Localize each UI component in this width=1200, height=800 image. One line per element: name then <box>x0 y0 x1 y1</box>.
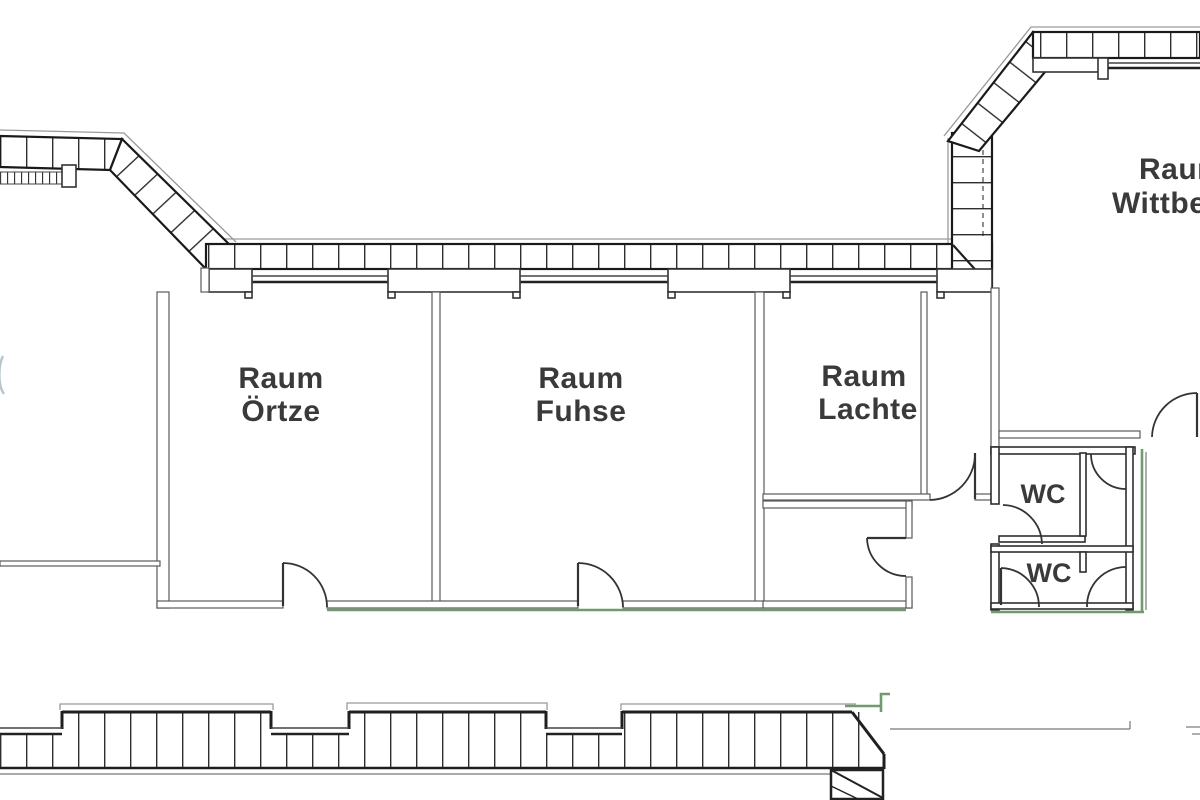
label-oertze-line2: Örtze <box>241 395 320 428</box>
wall-bottom <box>327 601 578 608</box>
wall-pier <box>209 269 252 292</box>
wall-bottom-annex <box>763 601 912 608</box>
wall-annex-right <box>906 577 912 608</box>
clipped-edge-artifact <box>0 356 4 394</box>
label-lachte-line2: Lachte <box>818 393 918 426</box>
door-annex <box>867 538 906 576</box>
wall-wc-partition-bottom <box>1080 552 1086 572</box>
wall-pier <box>388 269 520 292</box>
pier-stub <box>937 292 944 298</box>
pier-stub <box>245 292 252 298</box>
label-wc-top: WC <box>1021 479 1066 509</box>
bottom-wall-band <box>0 712 884 768</box>
label-wittbeck-line1: Raum <box>1139 153 1200 186</box>
exterior-wall-bands <box>0 32 1200 288</box>
wall-wittbeck-left <box>991 288 999 448</box>
site-continuation-line <box>890 721 1200 734</box>
wall-annex-top <box>763 501 912 508</box>
wall-left-room-bottom <box>0 561 160 566</box>
window-sill-comb <box>0 172 62 184</box>
window-oertze <box>252 276 388 283</box>
wall-wittbeck-south <box>999 431 1140 438</box>
pier-stub <box>783 292 790 298</box>
wall-wc-partition-top <box>1080 453 1086 536</box>
wall-annex-right <box>906 501 912 538</box>
wall-wc-left <box>991 447 999 504</box>
door-oertze <box>283 563 327 607</box>
window-wittbeck <box>1033 58 1200 79</box>
floor-plan-page: Raum Örtze Raum Fuhse Raum Lachte Raum W… <box>0 0 1200 800</box>
wall-wc-bottom <box>991 603 1133 609</box>
wall-hinge-stub <box>975 494 991 500</box>
label-wc-bottom: WC <box>1027 558 1072 588</box>
label-wittbeck-line2: Wittbec <box>1112 187 1200 220</box>
bottom-wing <box>0 710 1200 799</box>
wall-bottom <box>157 601 283 608</box>
wall-wc-left <box>991 544 999 610</box>
label-fuhse-line1: Raum <box>538 362 623 395</box>
label-lachte-line1: Raum <box>821 360 906 393</box>
wall-band-top-right <box>1033 32 1200 58</box>
door-fuhse <box>578 563 623 607</box>
door-wittbeck <box>1152 393 1197 437</box>
wall-wc-right <box>1126 447 1133 610</box>
wall-lachte-right <box>921 292 927 496</box>
wall-fuhse-lachte <box>755 292 764 606</box>
wall-lachte-south <box>763 494 930 500</box>
wall-bottom <box>623 601 764 608</box>
window-lachte <box>790 276 937 283</box>
wall-wc-top <box>991 447 1135 454</box>
pier-stub <box>668 292 675 298</box>
wall-oertze-fuhse <box>432 292 440 606</box>
wall-pier <box>937 269 992 292</box>
floor-plan-drawing: Raum Örtze Raum Fuhse Raum Lachte Raum W… <box>0 0 1200 800</box>
wall-band-top-main <box>206 244 992 269</box>
label-fuhse-line2: Fuhse <box>536 395 627 428</box>
window-fuhse <box>520 276 668 283</box>
interior-walls <box>0 268 1140 608</box>
wall-pier <box>668 269 790 292</box>
label-oertze-line1: Raum <box>238 362 323 395</box>
pier-stub <box>62 165 76 187</box>
door-lachte-lobby <box>930 453 975 500</box>
door-wc-right-cell <box>1091 454 1126 489</box>
room-labels: Raum Örtze Raum Fuhse Raum Lachte Raum W… <box>238 153 1200 588</box>
pier-stub <box>388 292 395 298</box>
wall-wc-mid-lower <box>991 546 1133 552</box>
door-wc-bottom-right <box>1087 567 1126 607</box>
wall-corner-stub <box>201 268 209 292</box>
pier-stub <box>513 292 520 298</box>
wall-band-top-left <box>0 136 122 170</box>
